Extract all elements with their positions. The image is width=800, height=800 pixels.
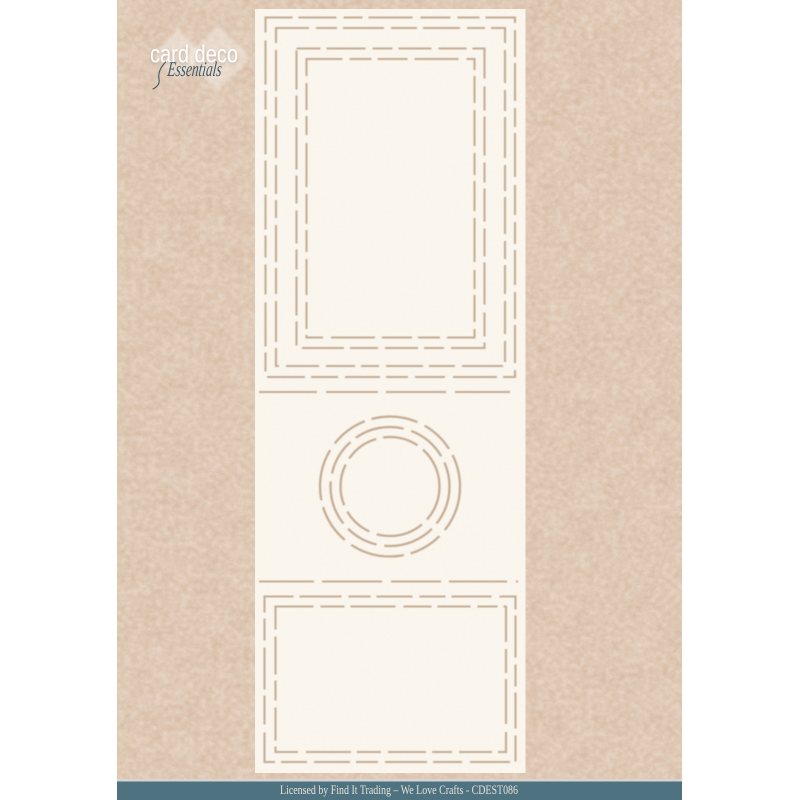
- svg-text:Licensed by Find It Trading –: Licensed by Find It Trading – We Love Cr…: [280, 783, 518, 797]
- svg-text:Essentials: Essentials: [166, 57, 223, 81]
